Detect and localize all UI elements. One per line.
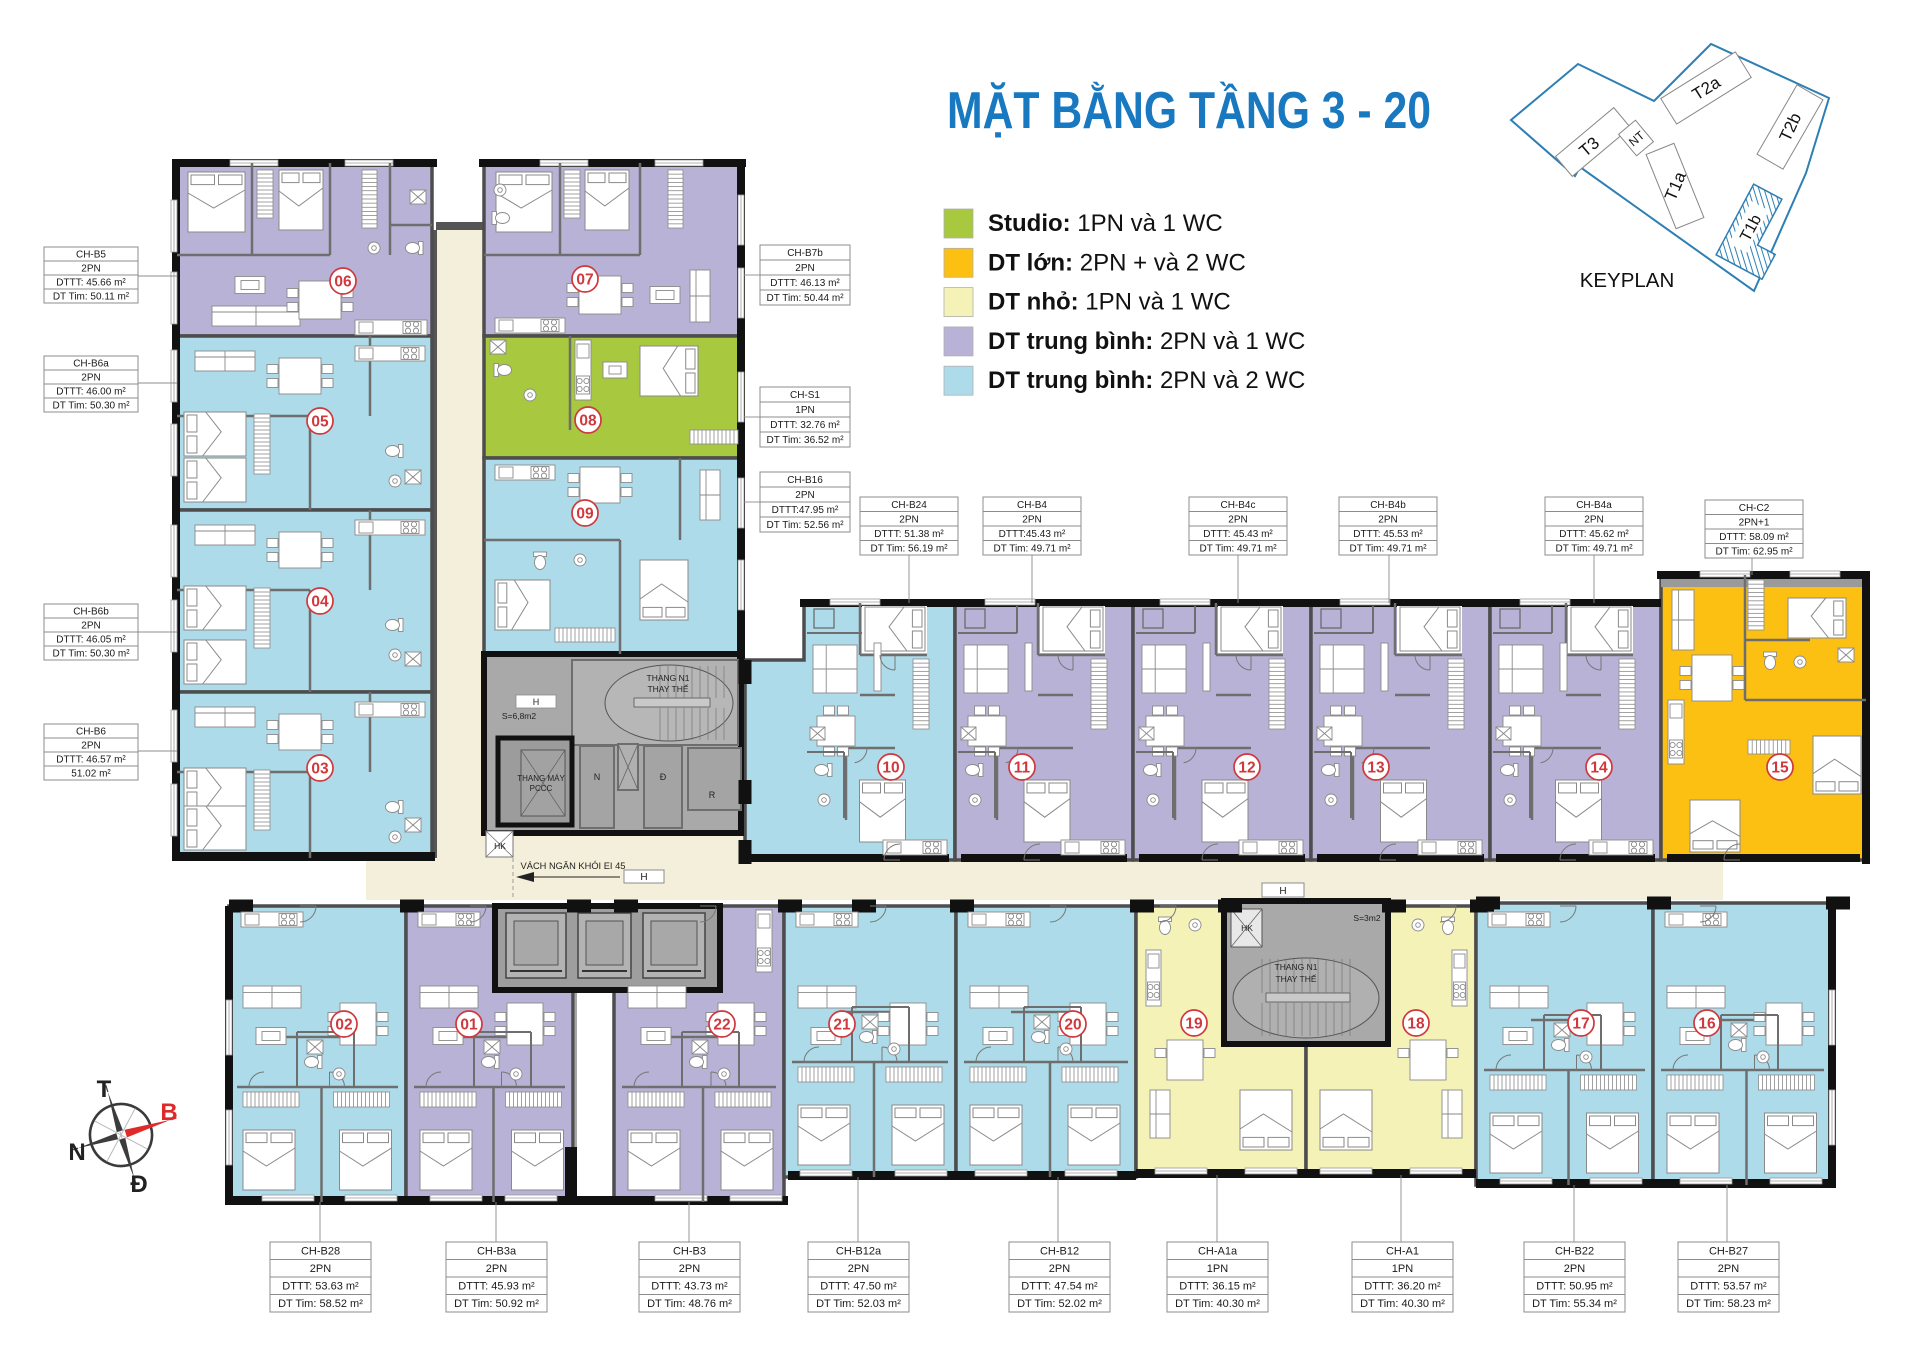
svg-text:DT Tim: 50.92 m²: DT Tim: 50.92 m² [454, 1298, 539, 1310]
svg-text:CH-B28: CH-B28 [301, 1246, 340, 1258]
svg-text:DT lớn: 2PN + và 2 WC: DT lớn: 2PN + và 2 WC [988, 249, 1246, 276]
svg-text:DTTT: 46.05 m²: DTTT: 46.05 m² [56, 635, 126, 646]
svg-text:12: 12 [1238, 760, 1255, 777]
svg-text:CH-B6: CH-B6 [76, 727, 106, 738]
svg-text:DTTT: 36.20 m²: DTTT: 36.20 m² [1364, 1281, 1441, 1293]
svg-text:CH-B4c: CH-B4c [1220, 500, 1255, 511]
svg-text:03: 03 [311, 761, 329, 778]
svg-text:DT Tim: 50.30 m²: DT Tim: 50.30 m² [52, 649, 130, 660]
svg-text:CH-B24: CH-B24 [891, 500, 927, 511]
svg-text:DT Tim: 50.44 m²: DT Tim: 50.44 m² [766, 293, 844, 304]
svg-text:DT trung bình: 2PN và 2 WC: DT trung bình: 2PN và 2 WC [988, 367, 1305, 394]
svg-text:DTTT: 32.76 m²: DTTT: 32.76 m² [770, 420, 840, 431]
svg-text:T: T [97, 1076, 112, 1103]
svg-text:09: 09 [576, 506, 594, 523]
svg-text:DTTT: 43.73 m²: DTTT: 43.73 m² [651, 1281, 728, 1293]
svg-text:KEYPLAN: KEYPLAN [1580, 269, 1675, 292]
svg-text:DTTT:47.95 m²: DTTT:47.95 m² [772, 505, 839, 516]
svg-text:DTTT: 50.95 m²: DTTT: 50.95 m² [1536, 1281, 1613, 1293]
svg-text:10: 10 [882, 760, 899, 777]
svg-text:15: 15 [1771, 760, 1789, 777]
svg-text:CH-B4a: CH-B4a [1576, 500, 1612, 511]
svg-text:DT Tim: 52.56 m²: DT Tim: 52.56 m² [766, 520, 844, 531]
svg-text:CH-B7b: CH-B7b [787, 248, 823, 259]
svg-text:VÁCH NGĂN KHÓI EI 45: VÁCH NGĂN KHÓI EI 45 [521, 861, 626, 871]
svg-text:CH-A1a: CH-A1a [1198, 1246, 1238, 1258]
svg-text:07: 07 [576, 272, 593, 289]
svg-text:16: 16 [1698, 1016, 1716, 1033]
svg-text:Đ: Đ [660, 772, 667, 782]
svg-text:DT Tim: 48.76 m²: DT Tim: 48.76 m² [647, 1298, 732, 1310]
svg-text:DT Tim: 62.95 m²: DT Tim: 62.95 m² [1715, 546, 1793, 557]
svg-text:DT Tim: 49.71 m²: DT Tim: 49.71 m² [1555, 543, 1633, 554]
svg-text:THAY THẾ: THAY THẾ [1275, 974, 1316, 984]
svg-text:N: N [68, 1139, 85, 1166]
svg-text:2PN: 2PN [81, 373, 100, 384]
svg-text:DTTT: 36.15 m²: DTTT: 36.15 m² [1179, 1281, 1256, 1293]
svg-text:20: 20 [1064, 1017, 1081, 1034]
svg-text:S=3m2: S=3m2 [1353, 913, 1380, 923]
svg-text:H: H [640, 872, 647, 883]
svg-text:08: 08 [579, 413, 597, 430]
svg-text:2PN: 2PN [848, 1263, 869, 1275]
svg-text:B: B [160, 1099, 177, 1126]
svg-text:DT Tim: 56.19 m²: DT Tim: 56.19 m² [870, 543, 948, 554]
svg-text:CH-A1: CH-A1 [1386, 1246, 1419, 1258]
svg-text:DTTT: 47.54 m²: DTTT: 47.54 m² [1021, 1281, 1098, 1293]
svg-text:21: 21 [833, 1017, 851, 1034]
svg-text:19: 19 [1185, 1016, 1203, 1033]
svg-text:H: H [533, 697, 540, 707]
svg-text:DT Tim: 49.71 m²: DT Tim: 49.71 m² [993, 543, 1071, 554]
svg-text:1PN: 1PN [1207, 1263, 1228, 1275]
svg-text:DT Tim: 49.71 m²: DT Tim: 49.71 m² [1199, 543, 1277, 554]
svg-text:THANG N1: THANG N1 [1275, 962, 1318, 972]
svg-text:CH-B12: CH-B12 [1040, 1246, 1079, 1258]
svg-text:04: 04 [311, 594, 329, 611]
svg-text:DT Tim: 52.02 m²: DT Tim: 52.02 m² [1017, 1298, 1102, 1310]
svg-text:DTTT: 45.93 m²: DTTT: 45.93 m² [458, 1281, 535, 1293]
svg-text:DT Tim: 55.34 m²: DT Tim: 55.34 m² [1532, 1298, 1617, 1310]
svg-text:CH-B4b: CH-B4b [1370, 500, 1406, 511]
svg-text:2PN: 2PN [1049, 1263, 1070, 1275]
svg-text:2PN: 2PN [1718, 1263, 1739, 1275]
svg-text:THAY THẾ: THAY THẾ [647, 684, 688, 694]
svg-text:18: 18 [1407, 1016, 1425, 1033]
svg-text:PCCC: PCCC [530, 784, 553, 793]
svg-text:H: H [1279, 886, 1286, 897]
svg-text:DTTT: 46.00 m²: DTTT: 46.00 m² [56, 387, 126, 398]
svg-text:DT trung bình: 2PN và 1 WC: DT trung bình: 2PN và 1 WC [988, 328, 1305, 355]
svg-text:2PN: 2PN [486, 1263, 507, 1275]
svg-text:MẶT BẰNG TẦNG 3 - 20: MẶT BẰNG TẦNG 3 - 20 [947, 81, 1431, 140]
svg-text:DT Tim: 49.71 m²: DT Tim: 49.71 m² [1349, 543, 1427, 554]
svg-text:DTTT:45.43 m²: DTTT:45.43 m² [999, 529, 1066, 540]
svg-text:DT Tim: 58.52 m²: DT Tim: 58.52 m² [278, 1298, 363, 1310]
svg-text:DT Tim: 50.30 m²: DT Tim: 50.30 m² [52, 401, 130, 412]
svg-text:2PN: 2PN [310, 1263, 331, 1275]
svg-text:1PN: 1PN [1392, 1263, 1413, 1275]
svg-text:DTTT: 45.66 m²: DTTT: 45.66 m² [56, 278, 126, 289]
svg-text:01: 01 [460, 1017, 478, 1034]
svg-text:2PN: 2PN [899, 514, 918, 525]
svg-text:05: 05 [311, 414, 329, 431]
svg-text:2PN: 2PN [1022, 514, 1041, 525]
svg-text:CH-B16: CH-B16 [787, 475, 823, 486]
svg-text:DT Tim: 40.30 m²: DT Tim: 40.30 m² [1360, 1298, 1445, 1310]
svg-text:2PN: 2PN [795, 490, 814, 501]
svg-text:R: R [709, 790, 716, 800]
svg-text:DT nhỏ: 1PN và 1 WC: DT nhỏ: 1PN và 1 WC [988, 289, 1231, 316]
svg-text:2PN: 2PN [1584, 514, 1603, 525]
svg-text:CH-B4: CH-B4 [1017, 500, 1047, 511]
svg-text:Studio: 1PN và 1 WC: Studio: 1PN và 1 WC [988, 210, 1223, 237]
svg-text:06: 06 [334, 274, 352, 291]
svg-text:THANG MÁY: THANG MÁY [517, 774, 565, 783]
svg-text:22: 22 [713, 1017, 730, 1034]
svg-text:2PN: 2PN [1228, 514, 1247, 525]
svg-text:DTTT: 46.13 m²: DTTT: 46.13 m² [770, 278, 840, 289]
svg-text:2PN: 2PN [81, 621, 100, 632]
svg-text:17: 17 [1572, 1016, 1589, 1033]
svg-text:CH-S1: CH-S1 [790, 390, 820, 401]
svg-text:2PN: 2PN [1564, 1263, 1585, 1275]
svg-text:CH-B3a: CH-B3a [477, 1246, 517, 1258]
svg-text:DT Tim: 50.11 m²: DT Tim: 50.11 m² [53, 292, 130, 303]
svg-text:DTTT: 45.53 m²: DTTT: 45.53 m² [1353, 529, 1423, 540]
svg-text:DT Tim: 36.52 m²: DT Tim: 36.52 m² [766, 435, 844, 446]
svg-text:1PN: 1PN [795, 405, 814, 416]
svg-text:2PN: 2PN [679, 1263, 700, 1275]
svg-text:N: N [594, 772, 601, 782]
svg-text:CH-B27: CH-B27 [1709, 1246, 1748, 1258]
svg-text:DTTT: 46.57 m²: DTTT: 46.57 m² [56, 755, 126, 766]
svg-text:CH-B6a: CH-B6a [73, 359, 109, 370]
svg-text:2PN: 2PN [795, 263, 814, 274]
svg-text:DTTT: 45.43 m²: DTTT: 45.43 m² [1203, 529, 1273, 540]
svg-text:HK: HK [1241, 923, 1253, 933]
svg-text:Đ: Đ [130, 1171, 147, 1198]
svg-text:CH-B6b: CH-B6b [73, 607, 109, 618]
svg-text:DT Tim: 58.23 m²: DT Tim: 58.23 m² [1686, 1298, 1771, 1310]
svg-text:2PN+1: 2PN+1 [1739, 517, 1770, 528]
svg-text:14: 14 [1590, 760, 1608, 777]
svg-text:51.02 m²: 51.02 m² [71, 769, 111, 780]
svg-text:CH-B5: CH-B5 [76, 250, 106, 261]
svg-text:THANG N1: THANG N1 [647, 673, 690, 683]
svg-text:CH-B3: CH-B3 [673, 1246, 706, 1258]
svg-text:DTTT: 45.62 m²: DTTT: 45.62 m² [1559, 529, 1629, 540]
svg-text:02: 02 [335, 1017, 352, 1034]
svg-text:2PN: 2PN [81, 264, 100, 275]
svg-text:S=6,8m2: S=6,8m2 [502, 711, 537, 721]
svg-text:2PN: 2PN [81, 741, 100, 752]
svg-text:DTTT: 53.57 m²: DTTT: 53.57 m² [1690, 1281, 1767, 1293]
svg-text:DT Tim: 52.03 m²: DT Tim: 52.03 m² [816, 1298, 901, 1310]
svg-text:DTTT: 53.63 m²: DTTT: 53.63 m² [282, 1281, 359, 1293]
svg-text:13: 13 [1367, 760, 1385, 777]
svg-text:HK: HK [494, 841, 506, 851]
svg-text:DTTT: 58.09 m²: DTTT: 58.09 m² [1719, 532, 1789, 543]
svg-text:DTTT: 47.50 m²: DTTT: 47.50 m² [820, 1281, 897, 1293]
svg-text:DTTT: 51.38 m²: DTTT: 51.38 m² [874, 529, 944, 540]
svg-text:2PN: 2PN [1378, 514, 1397, 525]
svg-text:CH-B22: CH-B22 [1555, 1246, 1594, 1258]
svg-text:CH-C2: CH-C2 [1739, 503, 1770, 514]
svg-text:DT Tim: 40.30 m²: DT Tim: 40.30 m² [1175, 1298, 1260, 1310]
svg-text:11: 11 [1014, 760, 1031, 777]
svg-text:CH-B12a: CH-B12a [836, 1246, 882, 1258]
